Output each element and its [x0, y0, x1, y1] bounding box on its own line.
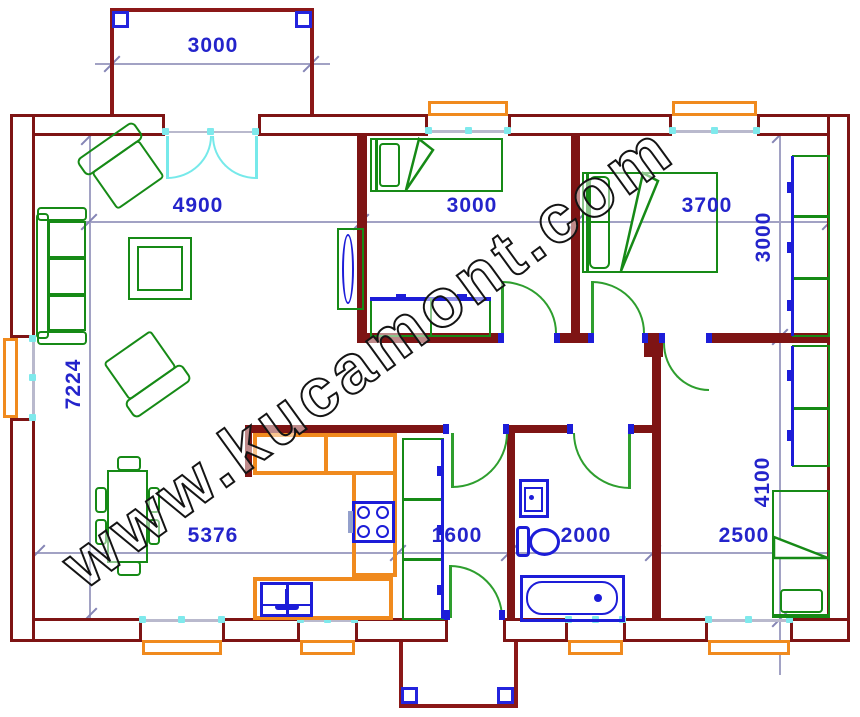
window-frame: [3, 338, 18, 418]
wardrobe-shelf: [792, 215, 830, 218]
dim-label-living-height: 7224: [62, 344, 86, 424]
tv-screen: [342, 234, 354, 304]
armchair: [93, 321, 195, 422]
bathroom-sink-drain: [529, 495, 534, 500]
window-frame: [568, 640, 623, 655]
entrance-door-swing: [167, 136, 212, 179]
entrance-door-swing: [212, 136, 256, 179]
sofa-armrest: [37, 207, 87, 221]
porch-column: [401, 687, 418, 704]
faucet: [275, 604, 299, 610]
dim-label-vestibule-width: 1600: [417, 524, 497, 548]
window-frame: [708, 640, 790, 655]
window-frame: [142, 640, 222, 655]
dim-line-porch: [95, 63, 330, 65]
pantry-shelf: [402, 498, 444, 501]
pantry-shelf: [402, 558, 444, 561]
wardrobe-handle: [787, 430, 792, 441]
bathtub-basin: [526, 581, 618, 615]
dim-label-bedroom2-height: 3000: [752, 197, 776, 277]
porch-top-wall-top: [110, 8, 314, 12]
wardrobe-front: [791, 346, 794, 466]
sofa-cushion: [48, 295, 86, 331]
dim-label-bedroom3-height: 4100: [751, 442, 775, 522]
wardrobe-handle: [787, 182, 792, 193]
wardrobe-handle: [787, 300, 792, 311]
porch-column: [497, 687, 514, 704]
wall-exterior-right: [827, 114, 850, 642]
stove-burner: [376, 506, 389, 519]
wall-hall-north: [557, 333, 592, 343]
dining-chair: [117, 456, 141, 471]
bed-headboard: [375, 138, 378, 192]
window-frame: [672, 101, 757, 116]
bedroom2-door-swing: [592, 281, 645, 333]
wardrobe-handle: [787, 242, 792, 253]
wardrobe: [792, 155, 830, 337]
dim-label-bathroom-width: 2000: [546, 524, 626, 548]
pantry-handle: [437, 585, 441, 595]
dim-label-porch-width: 3000: [173, 34, 253, 58]
wardrobe-shelf: [792, 277, 830, 280]
exit-door-swing: [450, 565, 503, 618]
pantry-handle: [437, 466, 441, 476]
sofa-armrest: [37, 331, 87, 345]
wall-exterior-left: [10, 114, 35, 338]
wall-exterior-bottom: [222, 618, 300, 642]
bathroom-sink-basin: [524, 487, 543, 512]
bed-footboard: [772, 614, 830, 618]
toilet-tank: [516, 526, 530, 557]
sofa-cushion: [48, 221, 86, 258]
stove-burner: [376, 525, 389, 538]
dim-label-living-width: 4900: [158, 194, 238, 218]
bed-pillow: [379, 143, 400, 187]
stove-burner: [357, 506, 370, 519]
wall-exterior-bottom: [790, 618, 850, 642]
wall-exterior-top: [258, 114, 428, 136]
coffee-table-inner: [137, 246, 183, 291]
wall-exterior-left: [10, 418, 35, 642]
wall-bathroom-east: [652, 357, 661, 620]
wardrobe-shelf: [792, 407, 830, 410]
bathtub-drain: [594, 594, 602, 602]
porch-column: [112, 11, 129, 28]
porch-column: [295, 11, 312, 28]
dim-label-bedroom3-width: 2500: [704, 524, 784, 548]
porch-bottom-wall-bottom: [399, 704, 518, 708]
wall-bathroom-north: [507, 425, 571, 433]
stove-handle: [348, 511, 353, 533]
wardrobe-handle: [787, 370, 792, 381]
stove-burner: [357, 525, 370, 538]
floor-plan-canvas: 3000 4900 3000 3700 7224 3000 5376 1600 …: [0, 0, 860, 717]
bedroom3-door-swing: [663, 343, 709, 391]
sofa-cushion: [48, 258, 86, 295]
wardrobe: [792, 345, 830, 467]
vestibule-door-swing: [452, 433, 508, 488]
window-frame: [300, 640, 355, 655]
wall-bathroom-west: [507, 425, 515, 620]
bathroom-door-swing: [573, 433, 630, 489]
wall-exterior-bottom: [355, 618, 448, 642]
kitchen-counter-divider: [324, 433, 328, 475]
bed-pillow: [780, 589, 823, 613]
wall-exterior-bottom: [623, 618, 708, 642]
dim-label-bedroom2-width: 3700: [667, 194, 747, 218]
window-frame: [428, 101, 508, 116]
porch-bottom-wall-right: [514, 642, 518, 708]
dim-line-upper: [60, 221, 846, 223]
wall-notch: [644, 343, 663, 357]
